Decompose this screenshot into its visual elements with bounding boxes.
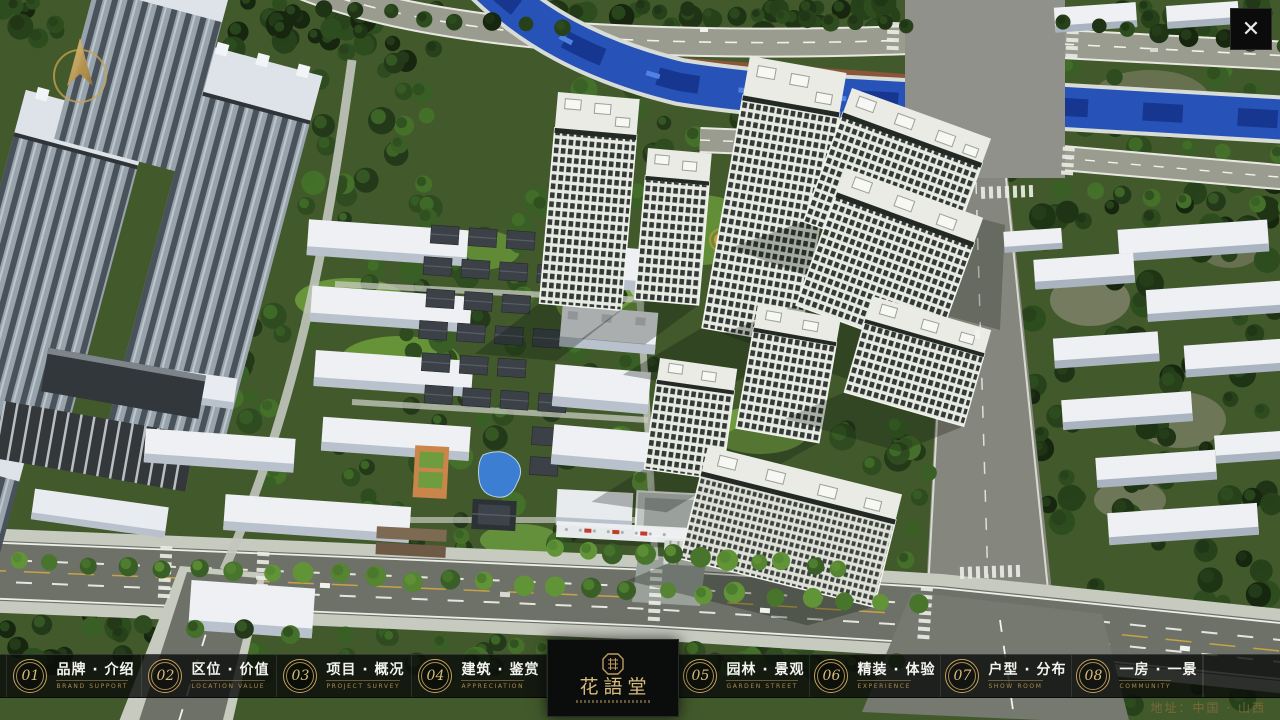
menu-label: 建筑 · 鉴赏 bbox=[461, 662, 539, 678]
menu-label: 精装 · 体验 bbox=[857, 662, 935, 678]
project-logo[interactable]: 花語堂 bbox=[547, 639, 679, 717]
menu-badge-04: 04 bbox=[418, 659, 452, 693]
close-icon: ✕ bbox=[1242, 17, 1260, 42]
menu-caption: LOCATION VALUE bbox=[191, 680, 265, 690]
menu-caption: COMMUNITY bbox=[1119, 680, 1171, 690]
menu-number: 04 bbox=[427, 669, 445, 683]
menu-badge-08: 08 bbox=[1076, 659, 1110, 693]
seal-icon bbox=[602, 653, 624, 675]
bottom-menu-bar: 01 品牌 · 介绍 BRAND SUPPORT 02 区位 · 价值 LOCA… bbox=[0, 654, 1280, 698]
menu-label: 项目 · 概况 bbox=[326, 662, 404, 678]
logo-subtitle-line bbox=[576, 700, 650, 703]
menu-item-location[interactable]: 02 区位 · 价值 LOCATION VALUE bbox=[142, 655, 277, 697]
menu-item-brand[interactable]: 01 品牌 · 介绍 BRAND SUPPORT bbox=[7, 655, 142, 697]
menu-badge-01: 01 bbox=[13, 659, 47, 693]
menu-number: 05 bbox=[692, 669, 710, 683]
menu-caption: BRAND SUPPORT bbox=[56, 680, 128, 690]
menu-item-architecture[interactable]: 04 建筑 · 鉴赏 APPRECIATION bbox=[412, 655, 547, 697]
menu-caption: EXPERIENCE bbox=[857, 680, 911, 690]
menu-badge-07: 07 bbox=[945, 659, 979, 693]
bar-spacer bbox=[1203, 655, 1280, 697]
logo-title: 花語堂 bbox=[574, 678, 651, 697]
menu-number: 08 bbox=[1085, 669, 1103, 683]
menu-label: 园林 · 景观 bbox=[726, 662, 804, 678]
menu-label: 一房 · 一景 bbox=[1119, 662, 1197, 678]
menu-badge-02: 02 bbox=[148, 659, 182, 693]
menu-number: 02 bbox=[157, 669, 175, 683]
menu-item-garden[interactable]: 05 园林 · 景观 GARDEN STREET bbox=[679, 655, 810, 697]
menu-label: 户型 · 分布 bbox=[988, 662, 1066, 678]
menu-number: 03 bbox=[292, 669, 310, 683]
menu-badge-03: 03 bbox=[283, 659, 317, 693]
menu-caption: PROJECT SURVEY bbox=[326, 680, 400, 690]
menu-number: 01 bbox=[22, 669, 40, 683]
bar-spacer bbox=[0, 655, 7, 697]
menu-caption: GARDEN STREET bbox=[726, 680, 797, 690]
menu-number: 07 bbox=[954, 669, 972, 683]
compass-north-icon bbox=[44, 34, 116, 114]
masterplan-viewport[interactable]: ✕ 01 品牌 · 介绍 BRAND SUPPORT 02 区位 · 价值 LO… bbox=[0, 0, 1280, 720]
address-text: 地址：中国 · 山西 bbox=[1151, 699, 1266, 716]
menu-label: 品牌 · 介绍 bbox=[56, 662, 134, 678]
aerial-scene[interactable] bbox=[0, 0, 1280, 720]
menu-caption: APPRECIATION bbox=[461, 680, 524, 690]
pavilion bbox=[471, 499, 517, 531]
menu-badge-05: 05 bbox=[683, 659, 717, 693]
menu-label: 区位 · 价值 bbox=[191, 662, 269, 678]
menu-number: 06 bbox=[823, 669, 841, 683]
close-button[interactable]: ✕ bbox=[1230, 8, 1272, 50]
menu-item-interior[interactable]: 06 精装 · 体验 EXPERIENCE bbox=[810, 655, 941, 697]
menu-item-project[interactable]: 03 项目 · 概况 PROJECT SURVEY bbox=[277, 655, 412, 697]
menu-item-views[interactable]: 08 一房 · 一景 COMMUNITY bbox=[1072, 655, 1203, 697]
menu-caption: SHOW ROOM bbox=[988, 680, 1042, 690]
menu-badge-06: 06 bbox=[814, 659, 848, 693]
menu-item-floorplans[interactable]: 07 户型 · 分布 SHOW ROOM bbox=[941, 655, 1072, 697]
